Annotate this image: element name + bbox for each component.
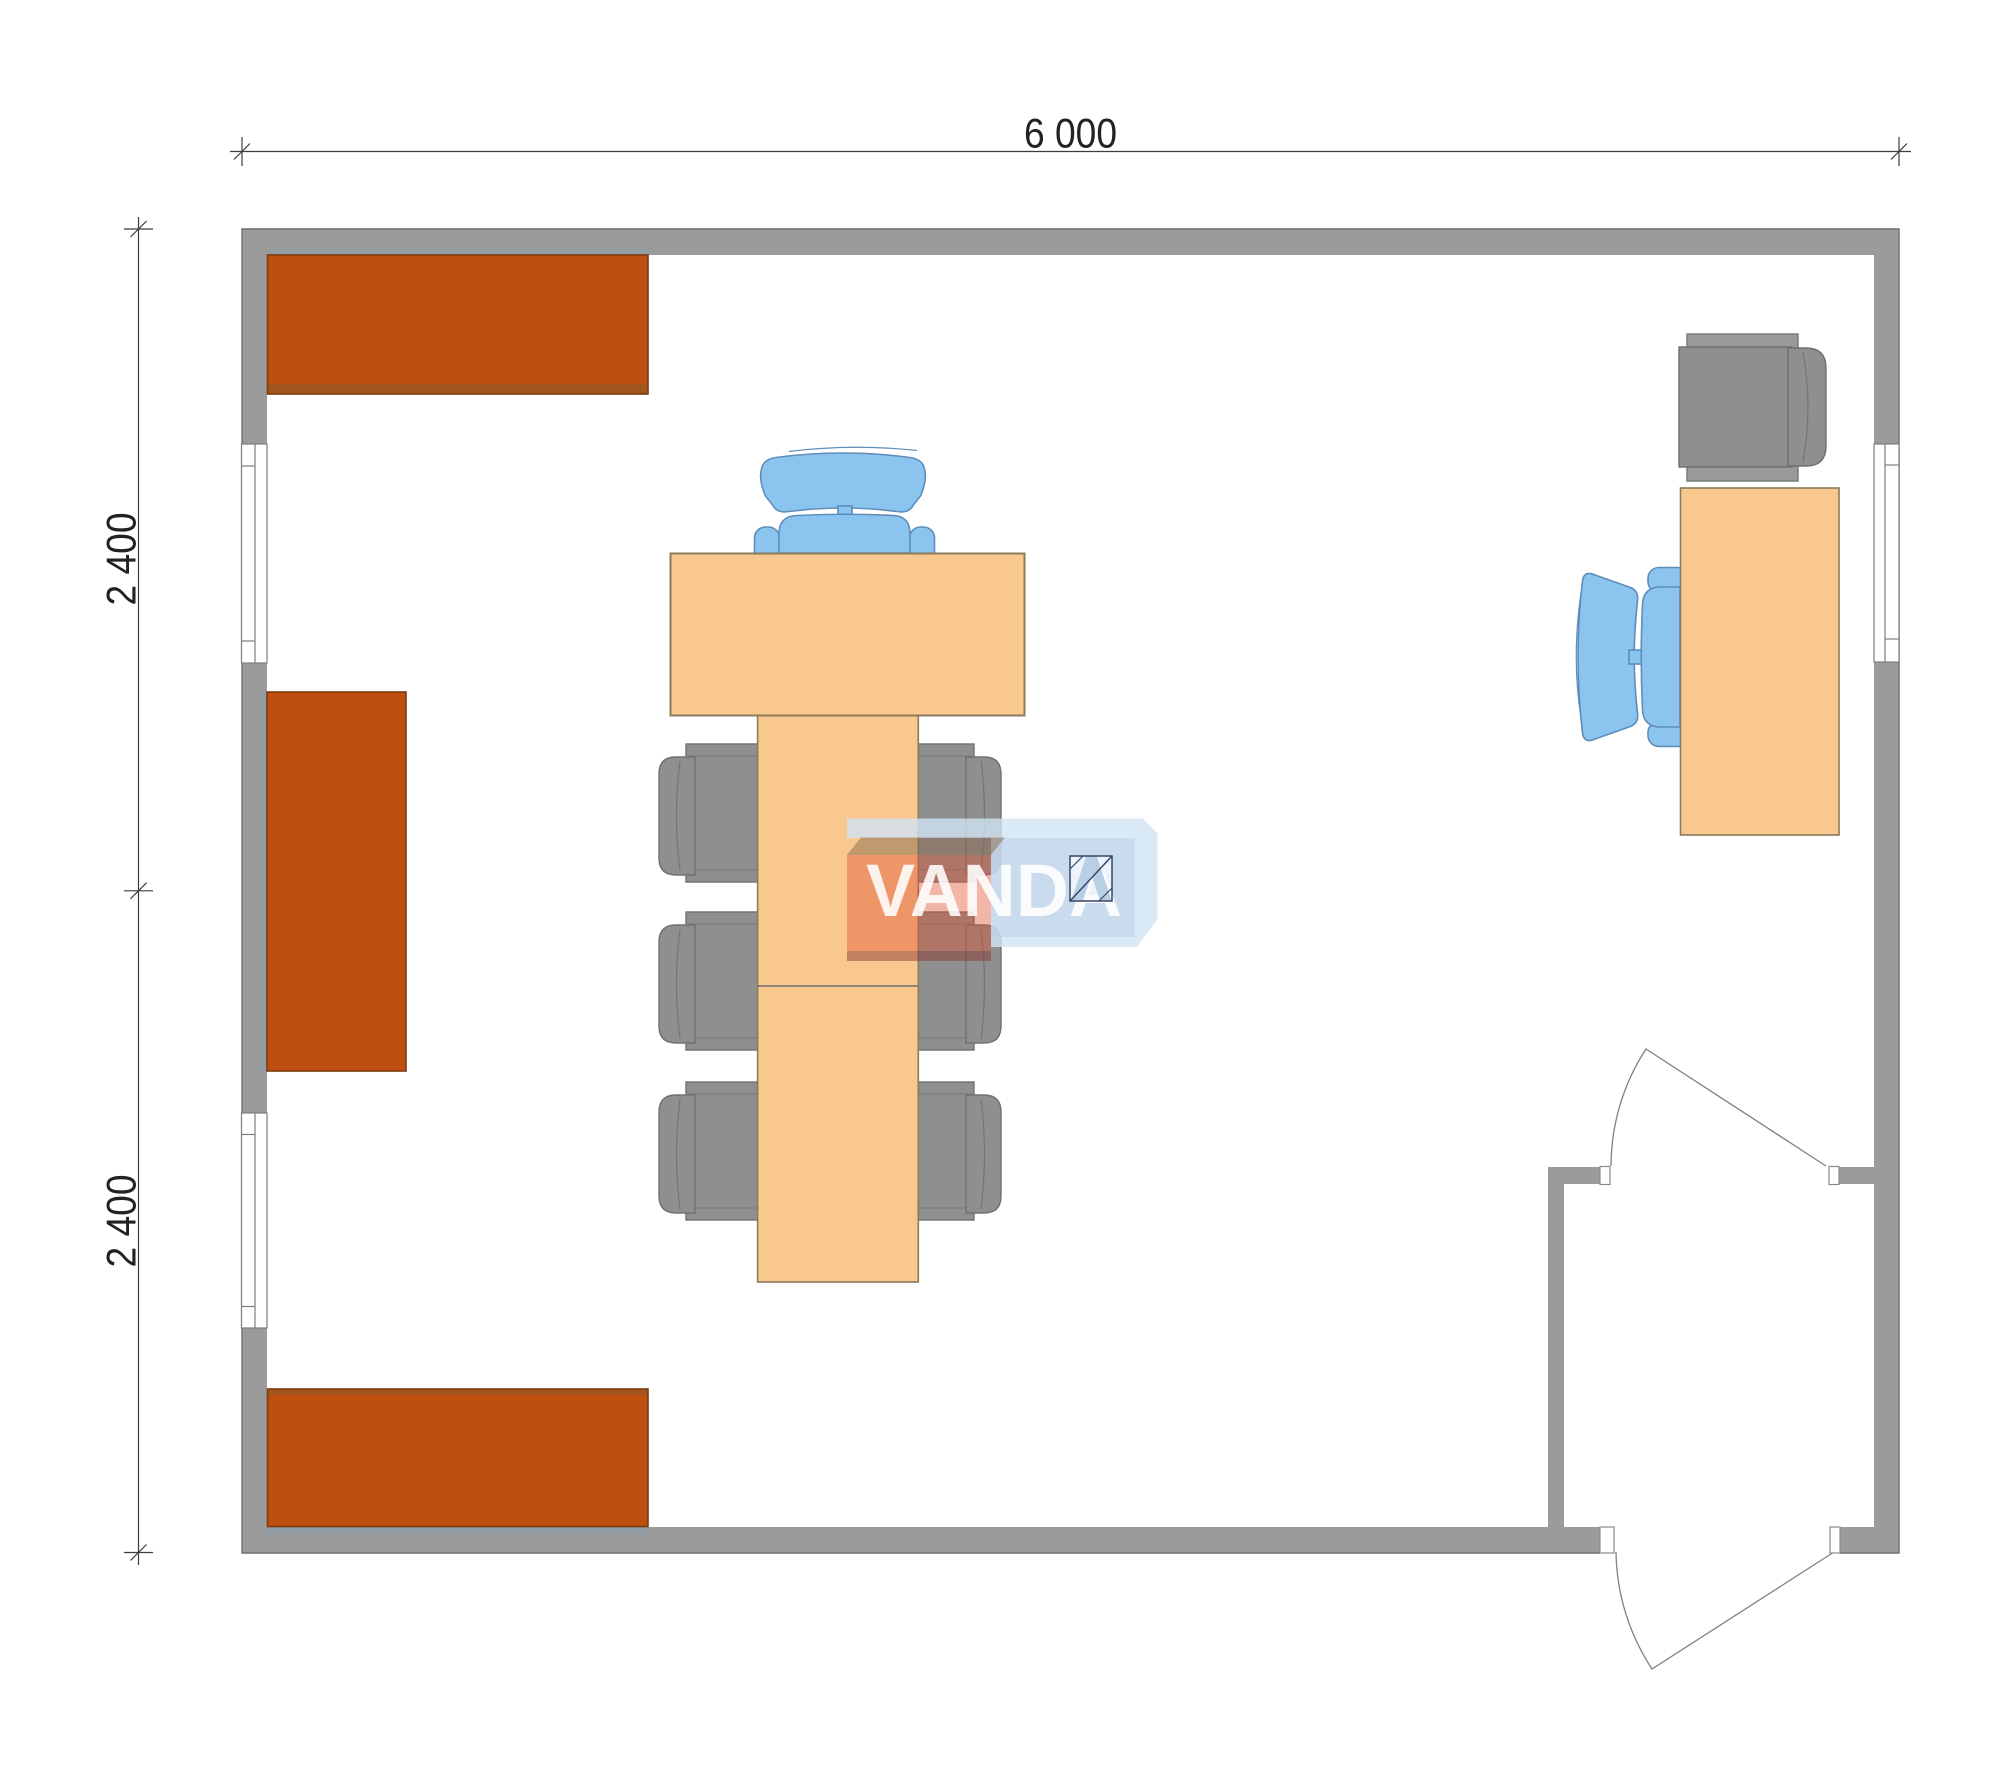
svg-text:2 400: 2 400 xyxy=(98,513,145,606)
svg-text:2 400: 2 400 xyxy=(98,1175,145,1268)
svg-text:6 000: 6 000 xyxy=(1024,110,1117,157)
